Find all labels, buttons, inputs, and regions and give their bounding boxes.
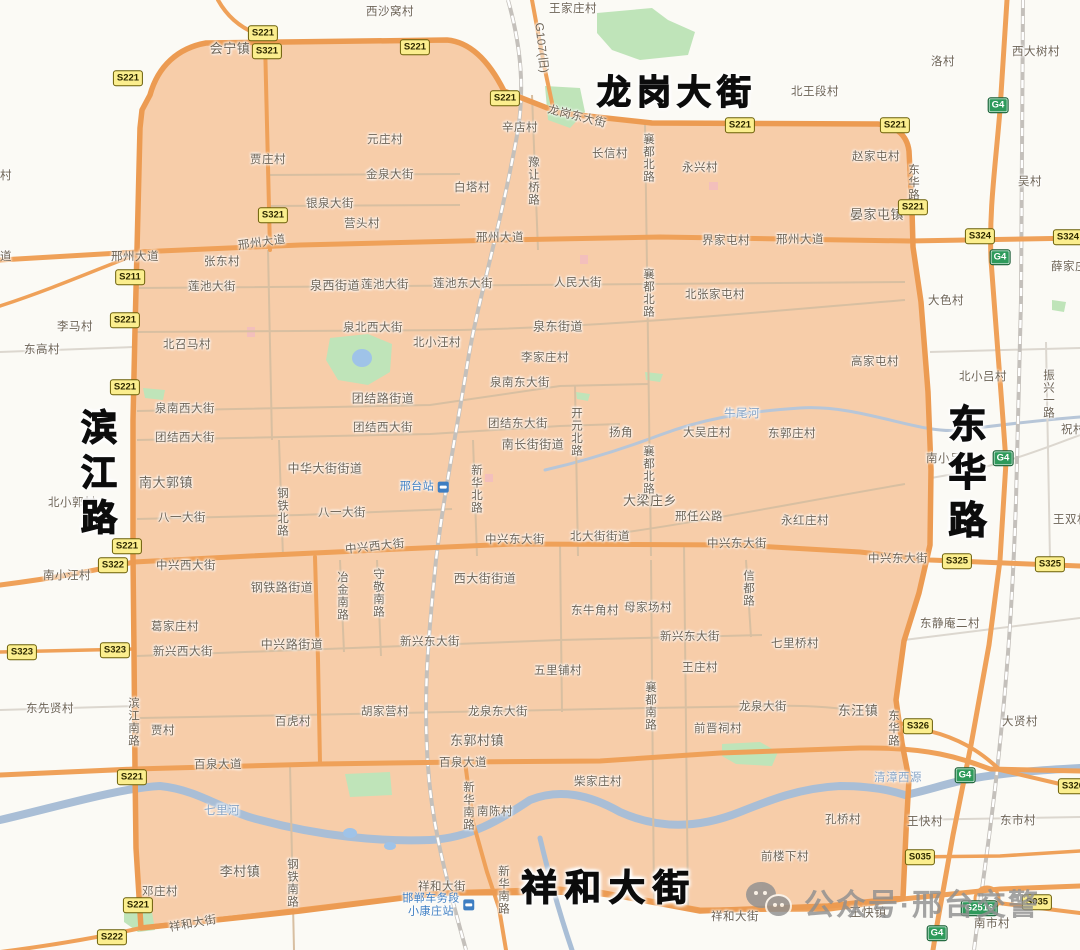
place-label: 南陈村 [477,806,513,818]
expressway-badge: G4 [988,97,1009,113]
street-label: 莲池大街 [361,279,409,291]
place-label: 元庄村 [367,134,403,146]
street-label: 团结东大街 [488,418,548,430]
place-label: 中华大街街道 [287,463,362,476]
street-label: 滨江南路 [127,697,139,747]
expressway-badge: G4 [955,767,976,783]
route-badge: S221 [117,769,147,785]
river-label: 牛尾河 [724,408,760,420]
place-label: 百虎村 [275,716,311,728]
route-badge: S324 [965,228,995,244]
route-badge: S221 [110,312,140,328]
street-label: 东华路 [907,163,919,201]
place-label: 北召马村 [163,339,211,351]
station-icon [437,481,448,492]
route-badge: S221 [113,70,143,86]
place-label: 泉东街道 [533,321,583,334]
station-label: 邯郸车务段小康庄站 [402,892,474,917]
route-badge: S221 [123,897,153,913]
route-badge: S221 [898,199,928,215]
place-label: 大吴庄村 [683,427,731,439]
place-label: 钢铁路街道 [251,582,314,595]
route-badge: S325 [1035,556,1065,572]
street-label: 襄都北路 [642,445,654,495]
place-label: 母家场村 [624,602,672,614]
place-label: 大梁庄乡 [623,494,677,508]
place-label: 会宁镇 [210,42,251,56]
place-label: 南小汪村 [43,570,91,582]
place-label: 道 [0,251,12,263]
route-badge: S321 [258,207,288,223]
place-label: 晏家屯镇 [850,208,904,222]
place-label: 泉西街道 [310,280,360,293]
place-label: 吴村 [1018,176,1042,188]
place-label: 西大树村 [1012,46,1060,58]
place-label: 东郭庄村 [768,428,816,440]
route-badge: S326 [903,718,933,734]
place-label: 大色村 [928,295,964,307]
place-label: 东牛角村 [571,605,619,617]
route-badge: S326 [1058,778,1080,794]
place-label: 东静庵二村 [920,618,980,630]
place-label: 孔桥村 [825,814,861,826]
major-street-title: 龙岗大街 [597,76,757,110]
street-label: 泉南西大街 [155,403,215,415]
route-badge: S324 [1053,229,1080,245]
place-label: 五里铺村 [534,665,582,677]
street-label: 银泉大街 [306,198,354,210]
street-label: 新华北路 [470,464,482,514]
place-label: 辛店村 [502,122,538,134]
wechat-icon [746,880,796,924]
place-label: 高家屯村 [851,356,899,368]
place-label: 李马村 [57,321,93,333]
street-label: 钢铁南路 [286,858,298,908]
street-label: 北大街街道 [570,531,630,543]
street-label: 邢任公路 [675,511,723,523]
place-label: 祝村 [1061,424,1080,436]
place-label: 张东村 [204,256,240,268]
street-label: 百泉大道 [439,757,487,769]
place-label: 贾村 [151,725,175,737]
route-badge: S325 [942,553,972,569]
place-label: 前晋祠村 [694,723,742,735]
street-label: 八一大街 [158,512,206,524]
route-badge: S221 [400,39,430,55]
expressway-badge: G4 [993,450,1014,466]
place-label: 营头村 [344,218,380,230]
place-label: 南长街街道 [502,439,565,452]
place-label: 永兴村 [682,162,718,174]
place-label: 永红庄村 [781,515,829,527]
street-label: 中兴东大街 [485,534,545,546]
place-label: 东高村 [24,344,60,356]
place-label: 南大郭镇 [139,476,193,490]
place-label: 长信村 [592,148,628,160]
river-label: 清漳西源 [874,772,922,784]
street-label: 豫让桥路 [527,156,539,206]
map-canvas[interactable]: 邢州大道邢州大道邢州大道邢州大道龙岗东大街金泉大街银泉大街莲池大街莲池大街莲池东… [0,0,1080,950]
street-label: 开元北路 [570,407,582,457]
place-label: 界家屯村 [702,235,750,247]
route-badge: S221 [248,25,278,41]
place-label: 白塔村 [454,182,490,194]
street-label: 新华南路 [462,781,474,831]
river-label: 七里河 [204,805,240,817]
place-label: 西沙窝村 [366,6,414,18]
route-badge: S035 [905,849,935,865]
street-label: 莲池大街 [188,281,236,293]
street-label: 中兴西大街 [156,560,216,572]
place-label: 洛村 [931,56,955,68]
station-label: 邢台站 [400,481,449,494]
place-label: 李村镇 [220,865,261,879]
street-label: 钢铁北路 [276,487,288,537]
place-label: 北王段村 [791,86,839,98]
route-badge: S221 [880,117,910,133]
street-label: 祥和大街 [418,881,466,893]
route-badge: S321 [252,43,282,59]
station-icon [463,900,474,911]
street-label: 中兴东大街 [868,553,928,565]
expressway-badge: G4 [927,925,948,941]
place-label: 王快村 [907,816,943,828]
street-label: 八一大街 [318,507,366,519]
place-label: 扬角 [609,427,633,439]
place-label: 薛家庄 [1051,261,1080,273]
place-label: 七里桥村 [771,638,819,650]
place-label: 村 [0,170,12,182]
street-label: 中兴东大街 [707,538,767,550]
street-label: 龙泉东大街 [468,706,528,718]
place-label: 李家庄村 [521,352,569,364]
route-badge: S221 [110,379,140,395]
street-label: 襄都北路 [642,133,654,183]
place-label: 北小汪村 [413,337,461,349]
street-label: 龙泉大街 [739,701,787,713]
place-label: 东汪镇 [838,704,879,718]
place-label: 王庄村 [682,662,718,674]
street-label: 邢州大道 [776,234,824,246]
place-label: 东市村 [1000,815,1036,827]
street-label: 新兴东大街 [400,636,460,648]
place-label: 团结路街道 [352,393,415,406]
place-label: 北张家屯村 [685,289,745,301]
street-label: 泉北西大街 [343,322,403,334]
major-street-title: 滨江路 [78,409,114,544]
street-label: 信都路 [742,569,754,607]
place-label: 赵家屯村 [852,151,900,163]
street-label: 新兴东大街 [660,631,720,643]
route-badge: S221 [725,117,755,133]
route-badge: S322 [98,557,128,573]
place-label: 柴家庄村 [574,776,622,788]
major-street-title: 祥和大街 [521,870,697,906]
street-label: 邢州大道 [476,232,524,244]
place-label: 贾庄村 [250,154,286,166]
place-label: 东先贤村 [26,703,74,715]
street-label: 人民大街 [554,277,602,289]
place-label: 西大街街道 [454,573,517,586]
street-label: 团结西大街 [353,422,413,434]
street-label: 莲池东大街 [433,278,493,290]
place-label: 胡家营村 [361,706,409,718]
expressway-badge: G4 [990,249,1011,265]
street-label: 百泉大道 [194,759,242,771]
watermark: 公众号·邢台交警 [746,880,1040,924]
place-label: 前楼下村 [761,851,809,863]
place-label: 北小吕村 [959,371,1007,383]
street-label: 邢州大道 [111,251,159,263]
street-label: 泉南东大街 [490,377,550,389]
watermark-text: 公众号·邢台交警 [804,880,1040,924]
street-label: 新华南路 [497,865,509,915]
place-label: 中兴路街道 [261,639,324,652]
route-badge: S211 [115,269,145,285]
street-label: 冶金南路 [336,571,348,621]
street-label: 团结西大街 [155,432,215,444]
place-label: 邓庄村 [142,886,178,898]
route-badge: S323 [7,644,37,660]
route-badge: S323 [100,642,130,658]
street-label: 金泉大街 [366,169,414,181]
street-label: 襄都北路 [642,268,654,318]
place-label: 王家庄村 [549,3,597,15]
route-badge: S221 [490,90,520,106]
place-label: 东郭村镇 [450,734,504,748]
route-badge: S222 [97,929,127,945]
place-label: 王双村 [1053,514,1080,526]
street-label: 襄都南路 [644,681,656,731]
street-label: 振兴一路 [1042,369,1054,419]
street-label: 守敬南路 [372,568,384,618]
street-label: 东华路 [887,709,899,747]
major-street-title: 东华路 [944,404,982,548]
street-label: 新兴西大街 [153,646,213,658]
place-label: 大贤村 [1002,716,1038,728]
place-label: 葛家庄村 [151,621,199,633]
